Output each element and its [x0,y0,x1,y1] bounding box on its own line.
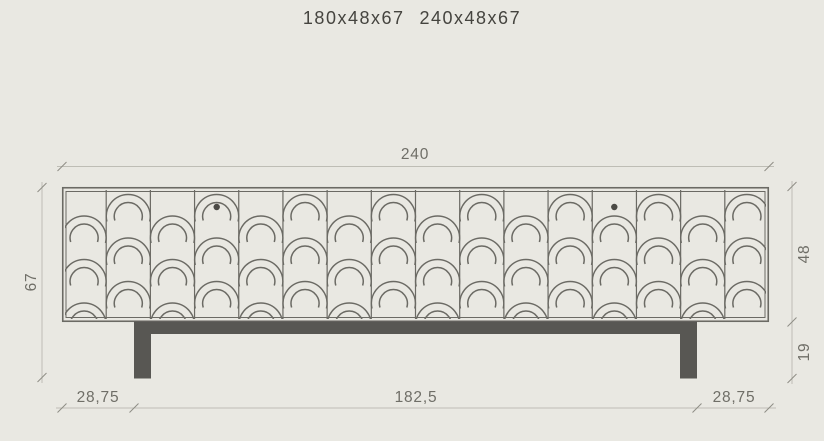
dim-label-bottom-1: 28,75 [77,389,120,406]
dim-label-bottom-3: 28,75 [713,389,756,406]
leg-left [134,322,151,379]
base-rail [134,322,697,335]
dim-label-height: 67 [23,273,40,292]
sideboard-front-elevation: 24028,75182,528,75674819 [0,0,824,441]
column-dividers [106,190,725,319]
dim-label-bottom-2: 182,5 [395,389,438,406]
technical-drawing: 24028,75182,528,75674819 [0,0,824,441]
dim-label-right-1: 48 [796,245,813,264]
product-dimension-sheet: 180x48x67 240x48x67 24028,75182,528,7567… [0,0,824,441]
knob-2 [611,204,617,210]
dim-label-right-2: 19 [796,343,813,362]
dim-label-width: 240 [401,146,429,163]
knob-1 [214,204,220,210]
leg-right [680,322,697,379]
